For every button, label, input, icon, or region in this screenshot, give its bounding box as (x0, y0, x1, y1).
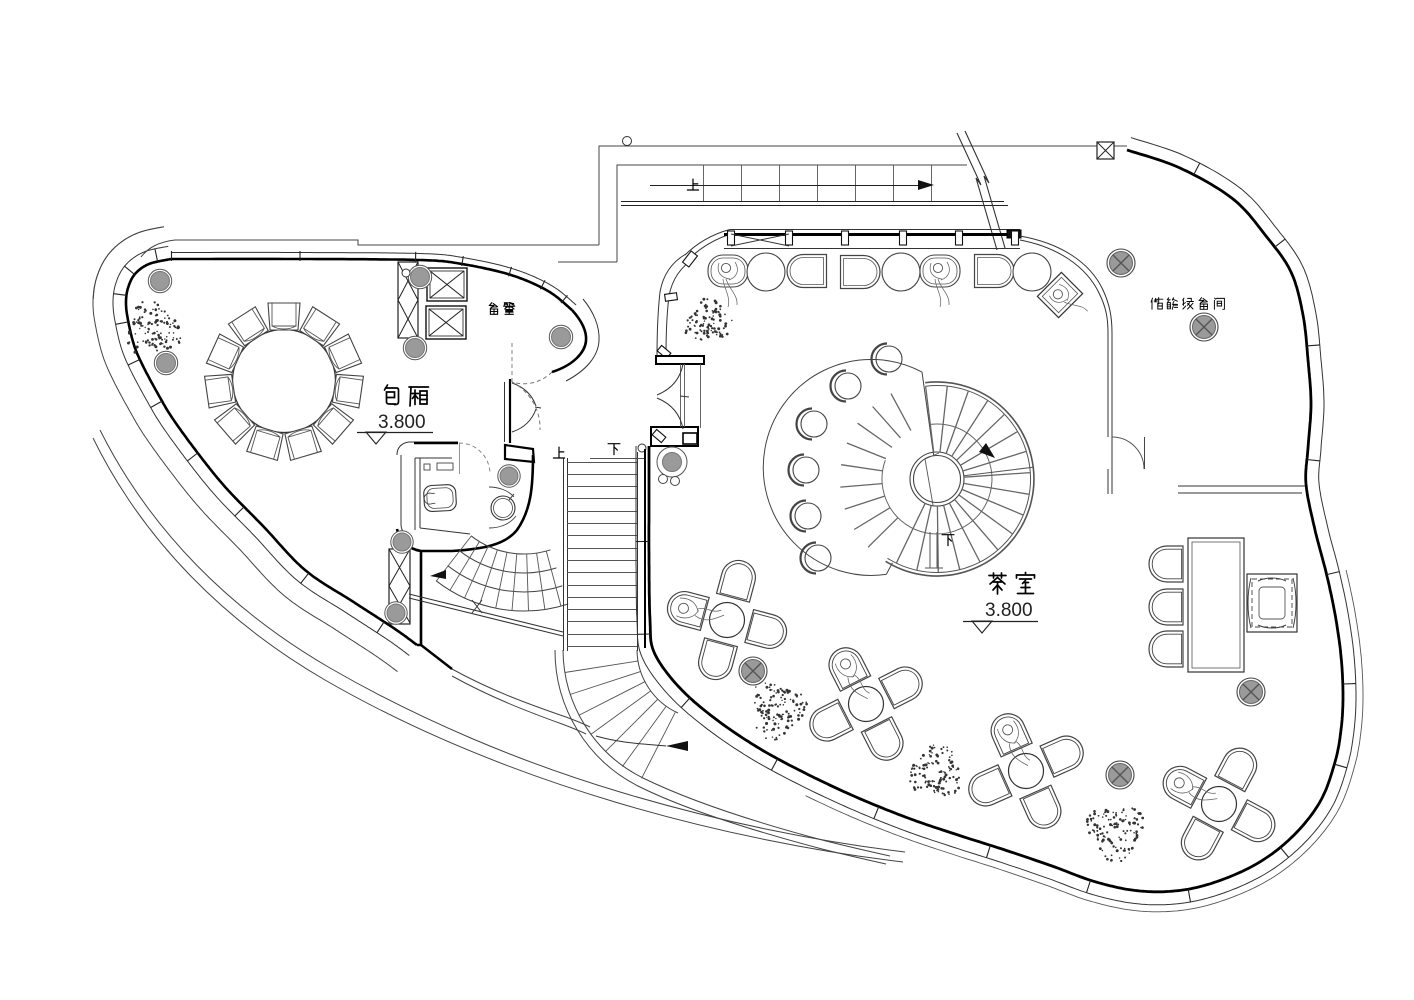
svg-text:3.800: 3.800 (985, 600, 1033, 621)
svg-text:3.800: 3.800 (378, 412, 426, 433)
